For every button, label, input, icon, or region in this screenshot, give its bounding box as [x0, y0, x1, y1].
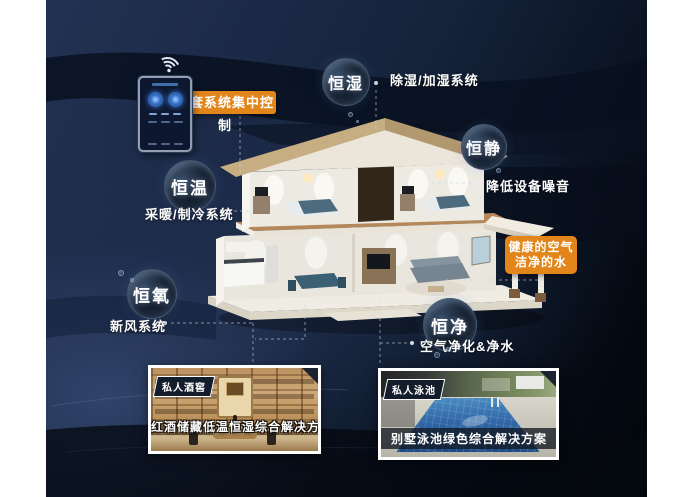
decorative-bubble [348, 112, 353, 117]
humidity-dial-icon [168, 92, 183, 107]
phone-screen-title-bar [152, 83, 178, 86]
clean-water-line: 洁净的水 [507, 255, 575, 270]
note-fresh-air-system: 新风系统 [110, 316, 166, 335]
bubble-constant-quiet: 恒静 [461, 124, 507, 170]
photo-badge-wine: 私人酒窖 [153, 376, 215, 397]
decorative-bubble [118, 270, 124, 276]
photo-private-pool: 私人泳池 别墅泳池绿色综合解决方案 [378, 368, 559, 460]
bubble-constant-humidity: 恒湿 [322, 58, 370, 106]
wine-cellar-picture-frame [226, 382, 244, 396]
photo-caption-wine: 红酒储藏低温恒湿综合解决方案 [151, 418, 318, 435]
wifi-icon [158, 56, 180, 74]
infographic-canvas: 一套系统集中控制 恒湿 除湿/加湿系统 恒静 降低设备噪音 恒温 采暖/制冷系统… [0, 0, 700, 497]
phone-dials [148, 92, 183, 107]
bubble-constant-oxygen: 恒氧 [127, 269, 177, 319]
decorative-bubble [496, 168, 501, 173]
house-illustration [196, 110, 566, 355]
pool-ladder-icon [491, 397, 499, 407]
note-dehumidify-system: 除湿/加湿系统 [390, 70, 479, 89]
decorative-bubble [434, 352, 440, 358]
decorative-bubble [356, 120, 359, 123]
healthy-air-water-callout: 健康的空气 洁净的水 [505, 236, 577, 274]
photo-caption-pool: 别墅泳池绿色综合解决方案 [381, 428, 556, 449]
thermostat-dial-icon [148, 92, 163, 107]
note-heating-cooling-system: 采暖/制冷系统 [145, 204, 234, 223]
photo-badge-pool: 私人泳池 [383, 379, 445, 400]
scene-stage: 一套系统集中控制 恒湿 除湿/加湿系统 恒静 降低设备噪音 恒温 采暖/制冷系统… [46, 0, 647, 497]
decorative-bubble [446, 347, 450, 351]
healthy-air-line: 健康的空气 [507, 240, 575, 255]
corner-ribbon [540, 371, 556, 387]
smart-control-panel [138, 76, 192, 152]
decorative-bubble [130, 278, 134, 282]
note-noise-reduction: 降低设备噪音 [486, 176, 570, 195]
photo-private-wine-cellar: 私人酒窖 红酒储藏低温恒湿综合解决方案 [148, 365, 321, 454]
corner-ribbon [302, 368, 318, 384]
